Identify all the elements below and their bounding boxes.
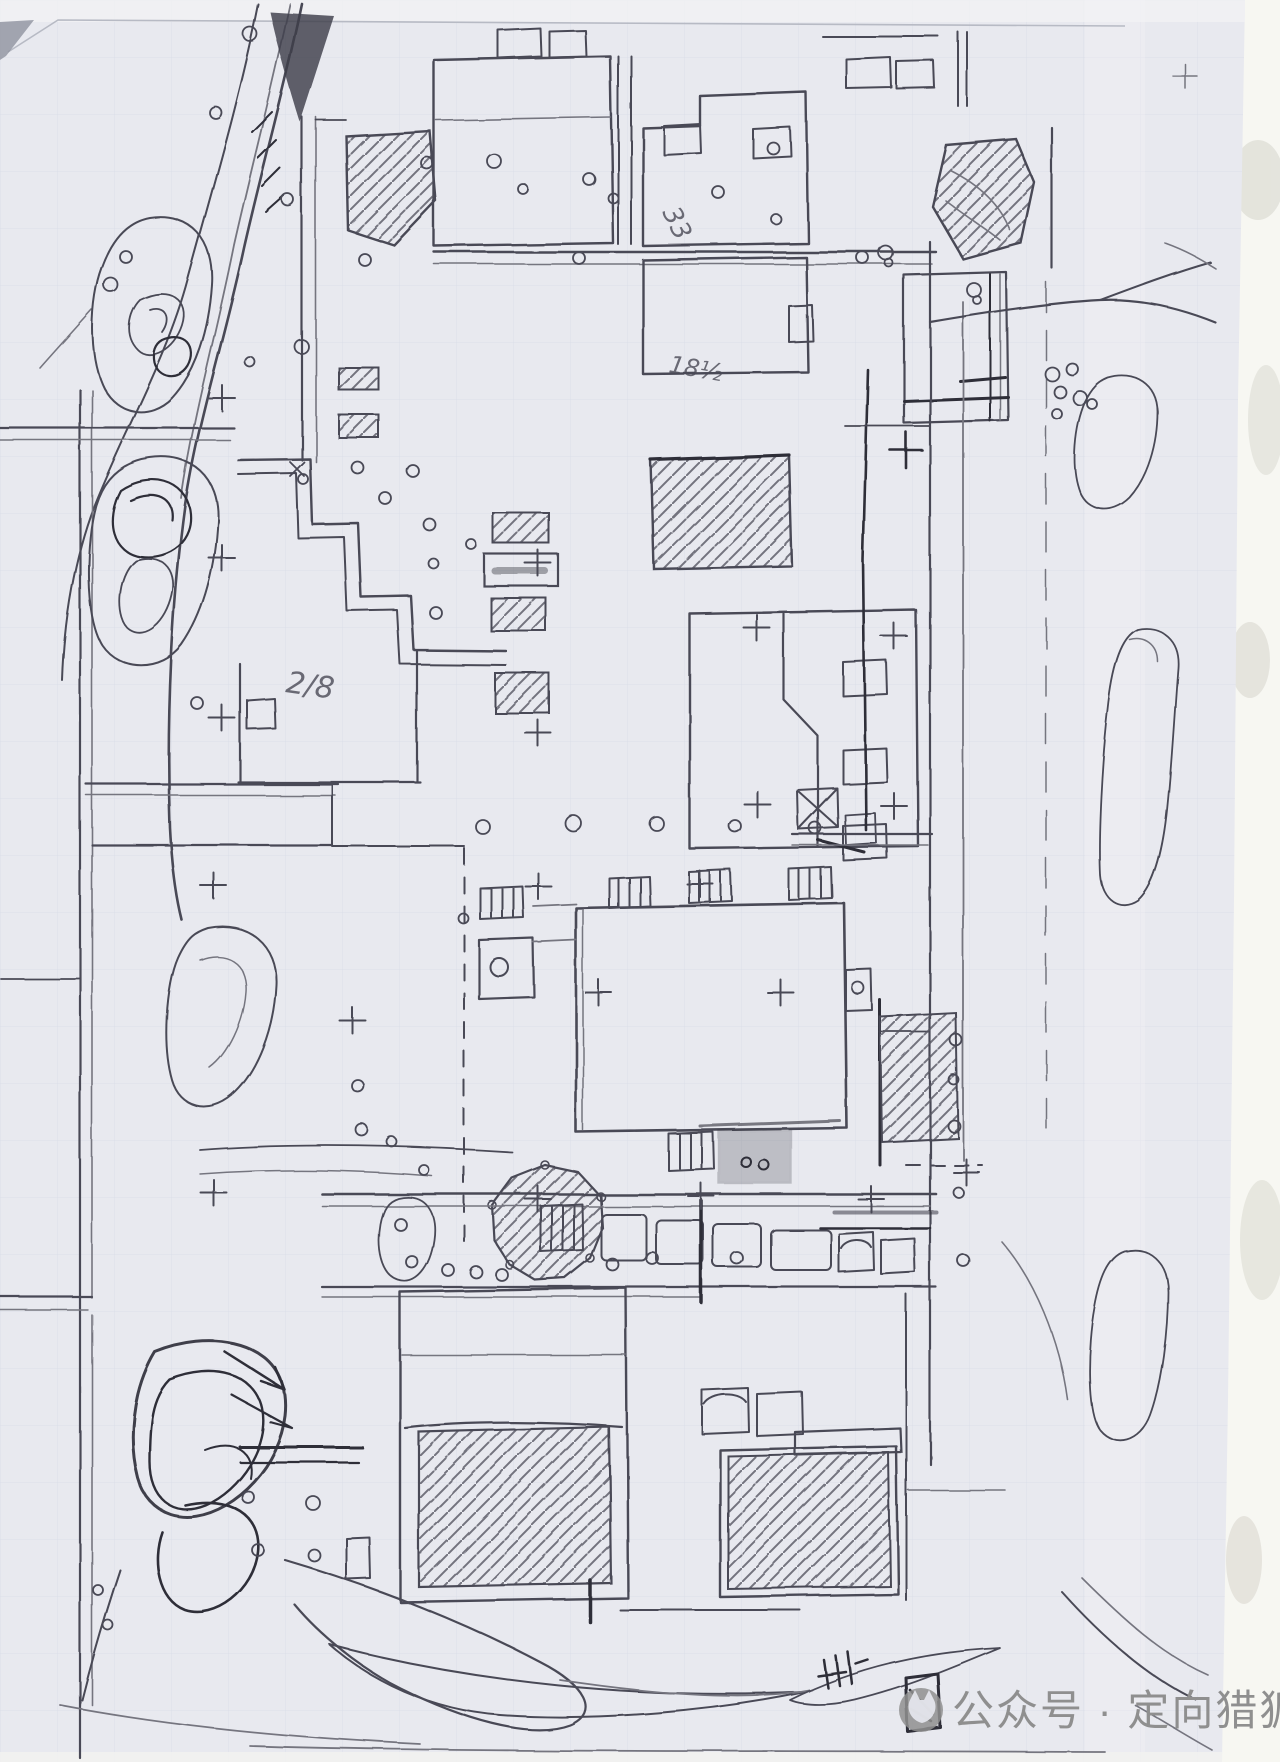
paper-bottom-edge-band [0,1752,1222,1762]
central-hatched-block [651,455,792,569]
sketch-canvas: 33 18½ 2/8 公众号 · 定向猎狐 [0,0,1280,1762]
paper-top-margin [0,0,1245,22]
scanned-sketch-page: 33 18½ 2/8 公众号 · 定向猎狐 [0,0,1280,1762]
watermark: 公众号 · 定向猎狐 [899,1687,1280,1734]
note-28: 2/8 [284,665,337,706]
paper-fold-band [1085,0,1145,1762]
watermark-text: 公众号 · 定向猎狐 [952,1687,1280,1734]
